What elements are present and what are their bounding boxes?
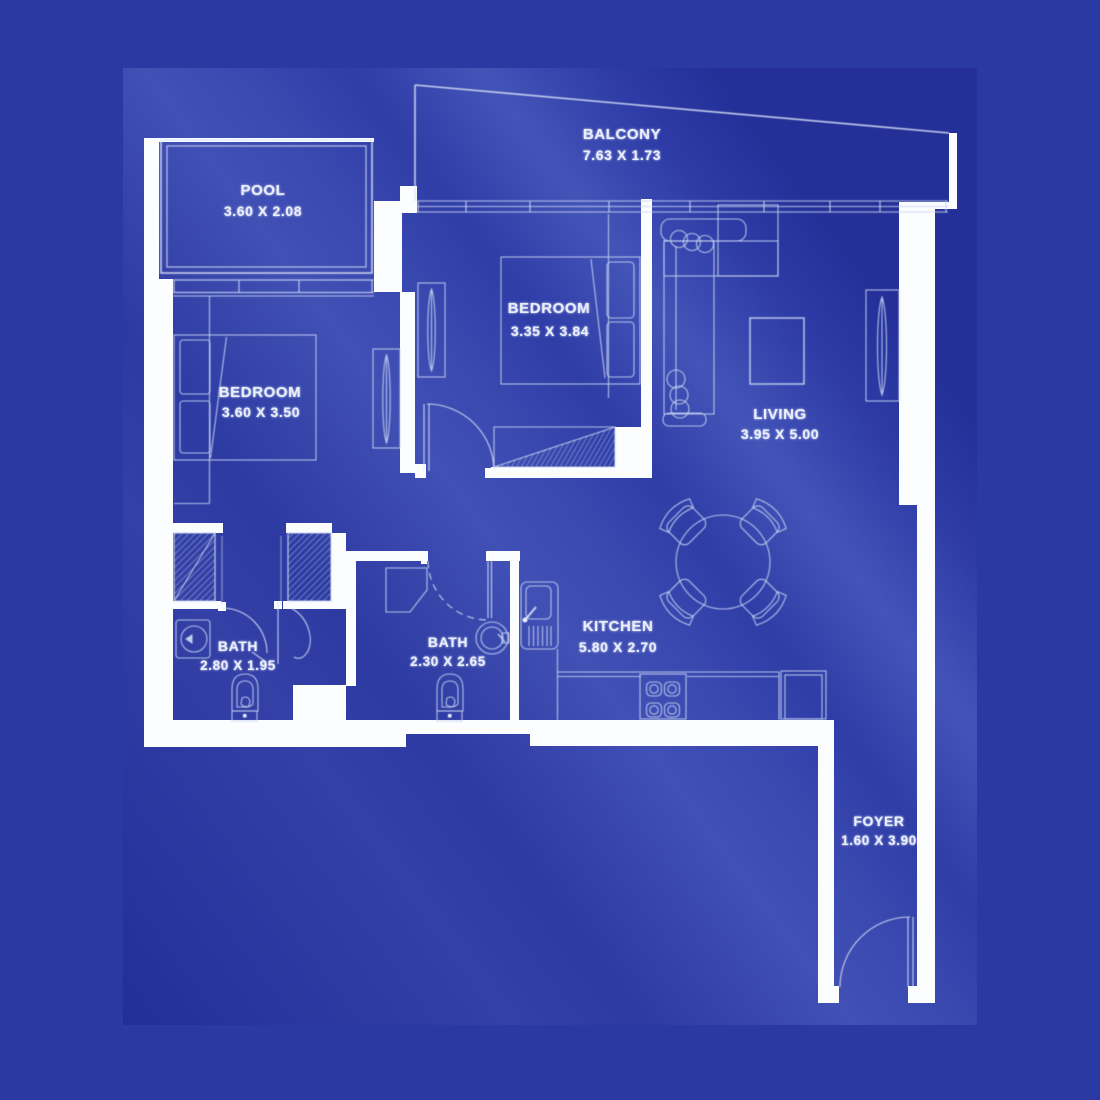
svg-text:3.60 X 2.08: 3.60 X 2.08 [224,203,302,219]
svg-text:1.60 X 3.90: 1.60 X 3.90 [841,833,917,848]
svg-text:BALCONY: BALCONY [583,126,661,143]
svg-text:3.95 X 5.00: 3.95 X 5.00 [741,426,819,442]
svg-text:3.35 X 3.84: 3.35 X 3.84 [511,323,589,339]
svg-text:POOL: POOL [241,182,286,199]
svg-text:BATH: BATH [218,638,258,654]
svg-text:FOYER: FOYER [853,813,904,829]
svg-text:7.63 X 1.73: 7.63 X 1.73 [583,147,661,163]
svg-text:2.30 X 2.65: 2.30 X 2.65 [410,654,486,669]
svg-text:KITCHEN: KITCHEN [583,618,654,635]
svg-text:BEDROOM: BEDROOM [508,300,591,317]
svg-text:3.60 X 3.50: 3.60 X 3.50 [222,404,300,420]
svg-text:5.80 X 2.70: 5.80 X 2.70 [579,639,657,655]
svg-text:LIVING: LIVING [753,406,807,423]
svg-text:2.80 X 1.95: 2.80 X 1.95 [200,658,276,673]
svg-text:BATH: BATH [428,634,468,650]
svg-text:BEDROOM: BEDROOM [219,384,302,401]
